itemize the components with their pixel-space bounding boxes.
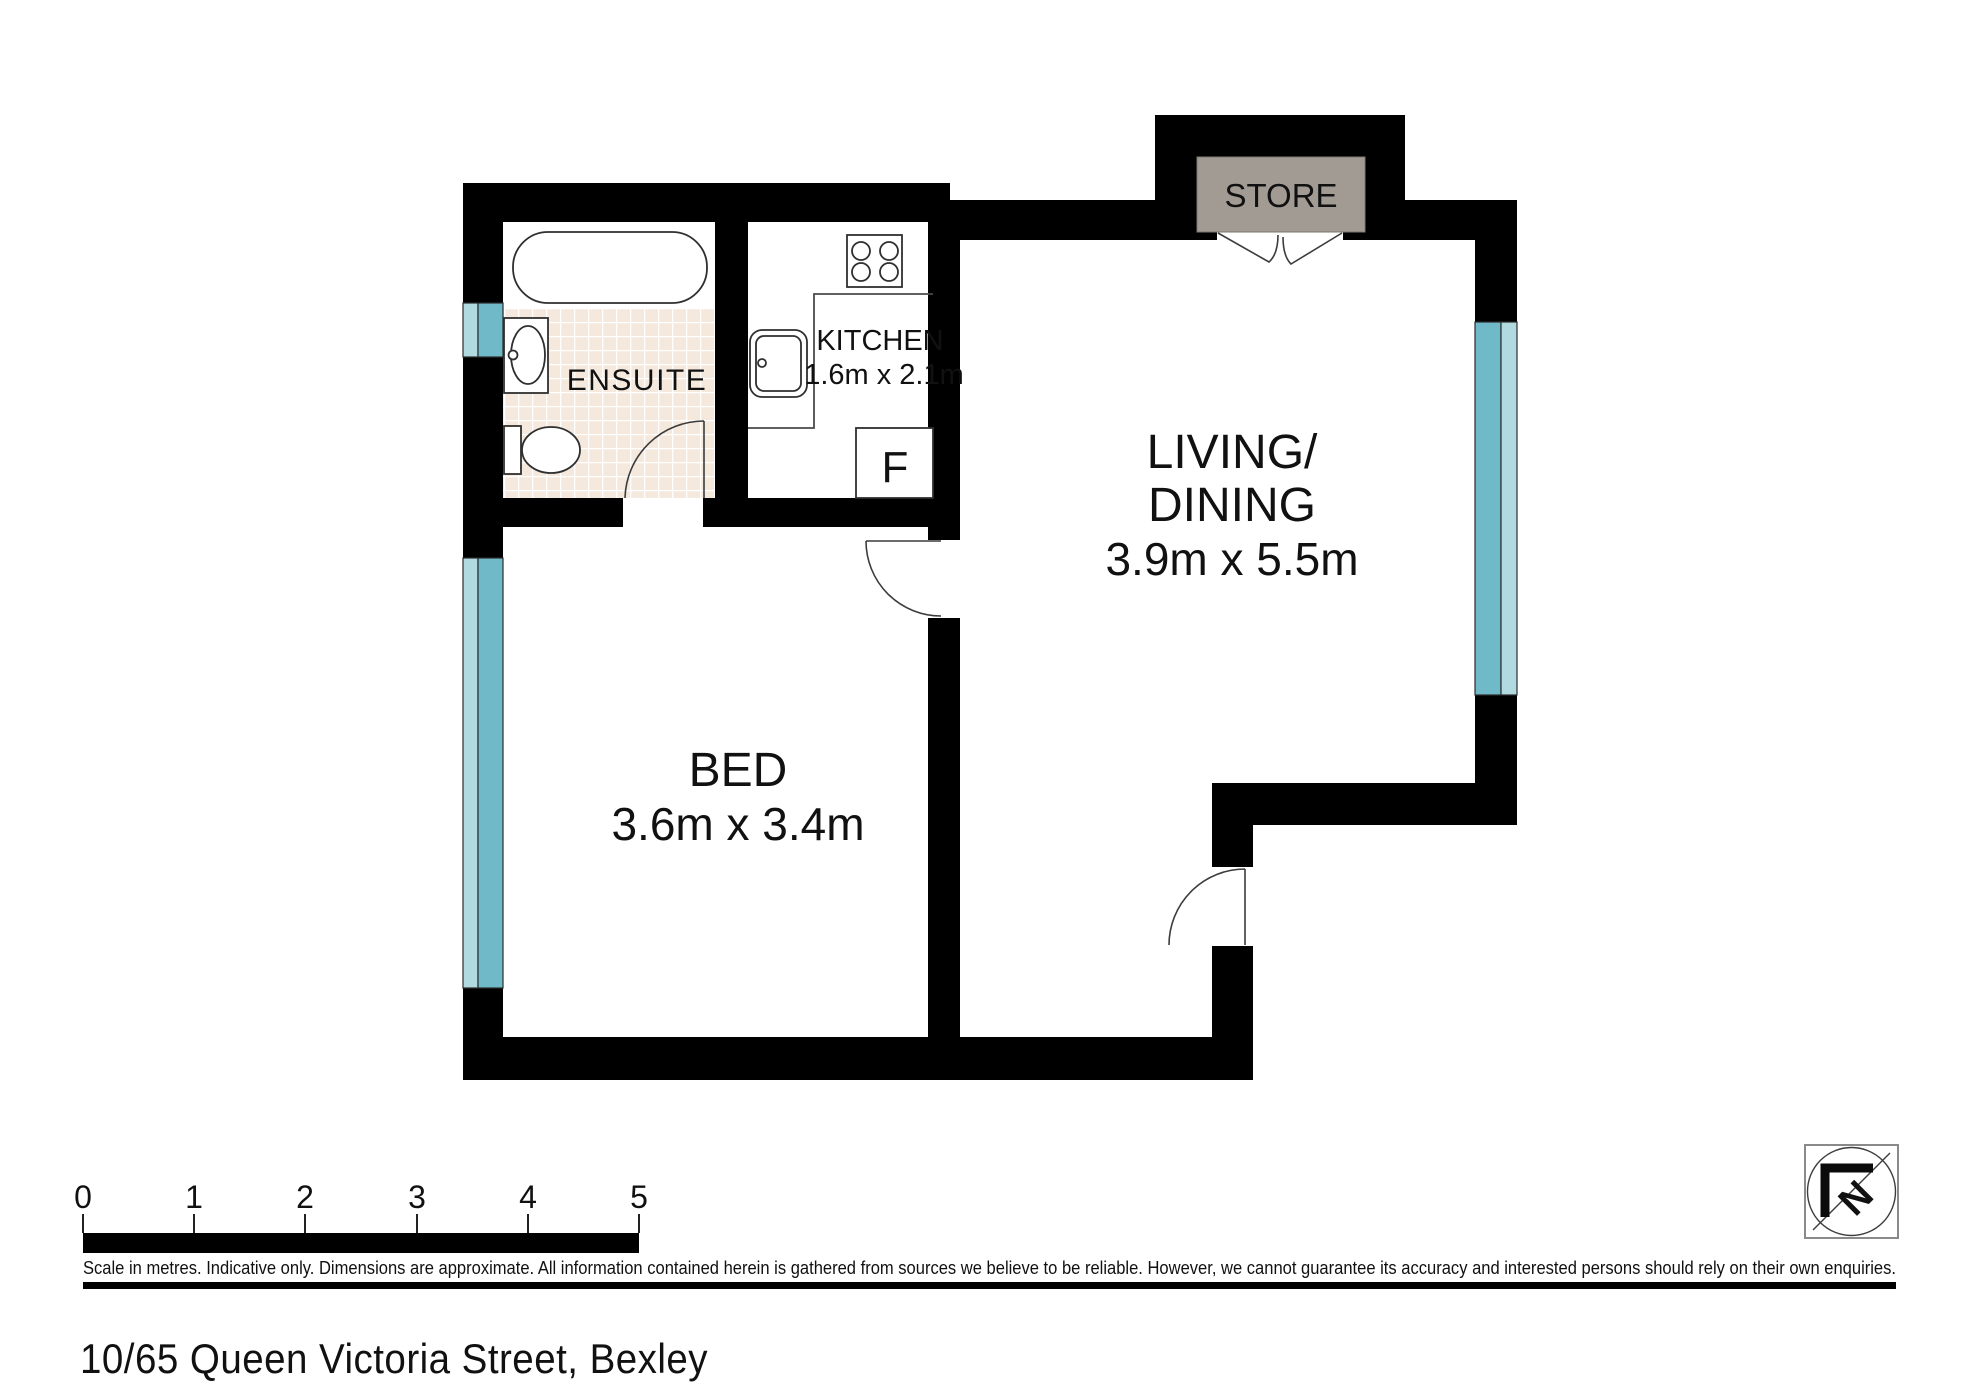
living-window-inner-pane	[1475, 322, 1501, 695]
store-label: STORE	[1224, 177, 1337, 214]
wall-bed-bottom	[463, 1037, 1253, 1080]
stove-burner	[852, 242, 870, 260]
fridge-label: F	[882, 443, 909, 492]
kitchen-label: KITCHEN	[816, 325, 943, 357]
scale-number: 2	[296, 1179, 314, 1215]
scale-number: 3	[408, 1179, 426, 1215]
wall-left-top	[463, 183, 503, 303]
kitchen-tap	[758, 359, 766, 367]
toilet-cistern	[504, 426, 521, 474]
bed-label: BED	[689, 744, 788, 797]
wall-ensuite-kitchen-divider	[715, 222, 748, 498]
wall-top-b	[950, 200, 1155, 240]
address-title: 10/65 Queen Victoria Street, Bexley	[80, 1335, 708, 1382]
ensuite-label: ENSUITE	[567, 364, 708, 397]
wall-right-upper	[1475, 240, 1517, 322]
bed-window-outer-pane	[463, 558, 478, 988]
scale-bar: 0 1 2 3 4 5	[74, 1179, 648, 1253]
wall-entry-upper	[1212, 783, 1253, 867]
stove-burner	[880, 242, 898, 260]
disclaimer-text: Scale in metres. Indicative only. Dimens…	[83, 1257, 1896, 1278]
scale-number: 1	[185, 1179, 203, 1215]
kitchen-dims: 1.6m x 2.1m	[804, 359, 964, 391]
north-compass: N	[1805, 1145, 1898, 1238]
living-label-line2: DINING	[1148, 479, 1316, 532]
entry-door	[1169, 869, 1245, 945]
bed-window-inner-pane	[478, 558, 503, 988]
stove-burner	[880, 263, 898, 281]
toilet-bowl	[522, 427, 580, 473]
wall-below-kitchen	[703, 498, 960, 527]
living-label-line1: LIVING/	[1147, 426, 1318, 479]
floorplan-canvas: F ENSUITE KITCHEN 1.6m x 2.1m LIVING/ DI…	[0, 0, 1980, 1400]
scale-ticks	[83, 1214, 639, 1233]
wall-top-a	[463, 183, 950, 222]
scale-number: 5	[630, 1179, 648, 1215]
bedroom-door	[866, 541, 941, 616]
ensuite-window-outer-pane	[463, 303, 478, 357]
bathtub	[513, 232, 707, 303]
bed-dims: 3.6m x 3.4m	[611, 798, 864, 850]
wall-left-low	[463, 988, 503, 1080]
living-dims: 3.9m x 5.5m	[1105, 533, 1358, 585]
scale-number: 4	[519, 1179, 537, 1215]
ensuite-window-inner-pane	[478, 303, 503, 357]
wall-below-ensuite	[503, 498, 623, 527]
footer-rule	[83, 1282, 1896, 1289]
wall-bed-right	[928, 618, 960, 1037]
wall-living-bottom	[1212, 783, 1517, 825]
wall-top-c	[1405, 200, 1517, 240]
living-window-outer-pane	[1501, 322, 1517, 695]
ensuite-tap	[509, 351, 518, 360]
scale-number: 0	[74, 1179, 92, 1215]
scale-bar-rule	[83, 1233, 639, 1253]
wall-left-mid	[463, 357, 503, 558]
stove-burner	[852, 263, 870, 281]
